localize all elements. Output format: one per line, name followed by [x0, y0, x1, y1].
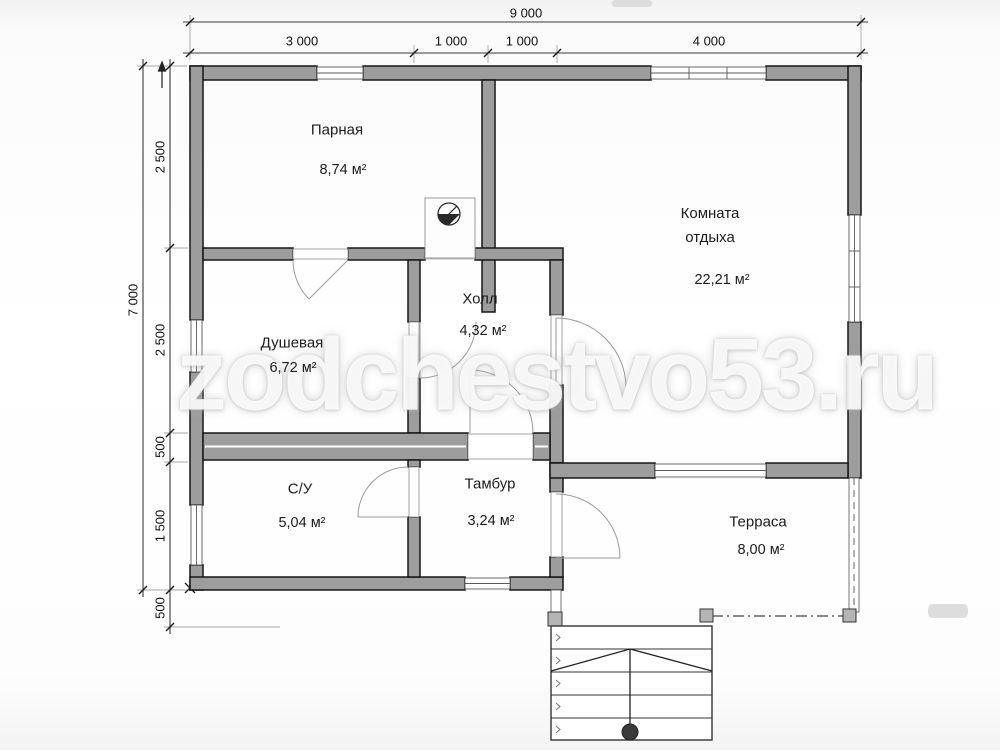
- page-artifacts: [612, 0, 968, 618]
- room-parnaya-name: Парная: [311, 122, 363, 139]
- room-holl-name: Холл: [462, 291, 497, 308]
- room-parnaya-area: 8,74 м²: [319, 162, 366, 178]
- stove-icon: [425, 198, 475, 258]
- dim-top-seg-1: 3 000: [286, 34, 319, 49]
- room-su-area: 5,04 м²: [278, 515, 325, 531]
- floorplan-canvas: zodchestvo53.ru Парная 8,74 м² Комната о…: [0, 0, 1000, 750]
- room-tambur-name: Тамбур: [465, 476, 516, 493]
- dim-left-total: 7 000: [126, 284, 141, 317]
- dim-top-total: 9 000: [510, 6, 543, 21]
- room-su-name: С/У: [288, 481, 313, 498]
- dim-top-seg-3: 1 000: [506, 34, 539, 49]
- room-terrasa-area: 8,00 м²: [737, 542, 784, 558]
- room-holl-area: 4,32 м²: [459, 323, 506, 339]
- dim-left-seg-3: 500: [153, 436, 168, 458]
- room-komnata-otdyha-area: 22,21 м²: [694, 272, 749, 288]
- dim-top-seg-4: 4 000: [693, 34, 726, 49]
- room-terrasa-name: Терраса: [729, 514, 787, 531]
- dim-left-seg-2: 2 500: [153, 324, 168, 357]
- stairs: [551, 626, 712, 740]
- room-komnata-otdyha-name: Комната отдыха: [658, 202, 762, 250]
- dim-left-seg-1: 2 500: [153, 141, 168, 174]
- room-dushevaya-area: 6,72 м²: [269, 360, 316, 376]
- room-tambur-area: 3,24 м²: [467, 513, 514, 529]
- dim-top-seg-2: 1 000: [435, 34, 468, 49]
- room-dushevaya-name: Душевая: [261, 335, 324, 352]
- dim-left-seg-5: 500: [153, 597, 168, 619]
- dim-left-seg-4: 1 500: [153, 510, 168, 543]
- terrace-railing: [548, 478, 859, 626]
